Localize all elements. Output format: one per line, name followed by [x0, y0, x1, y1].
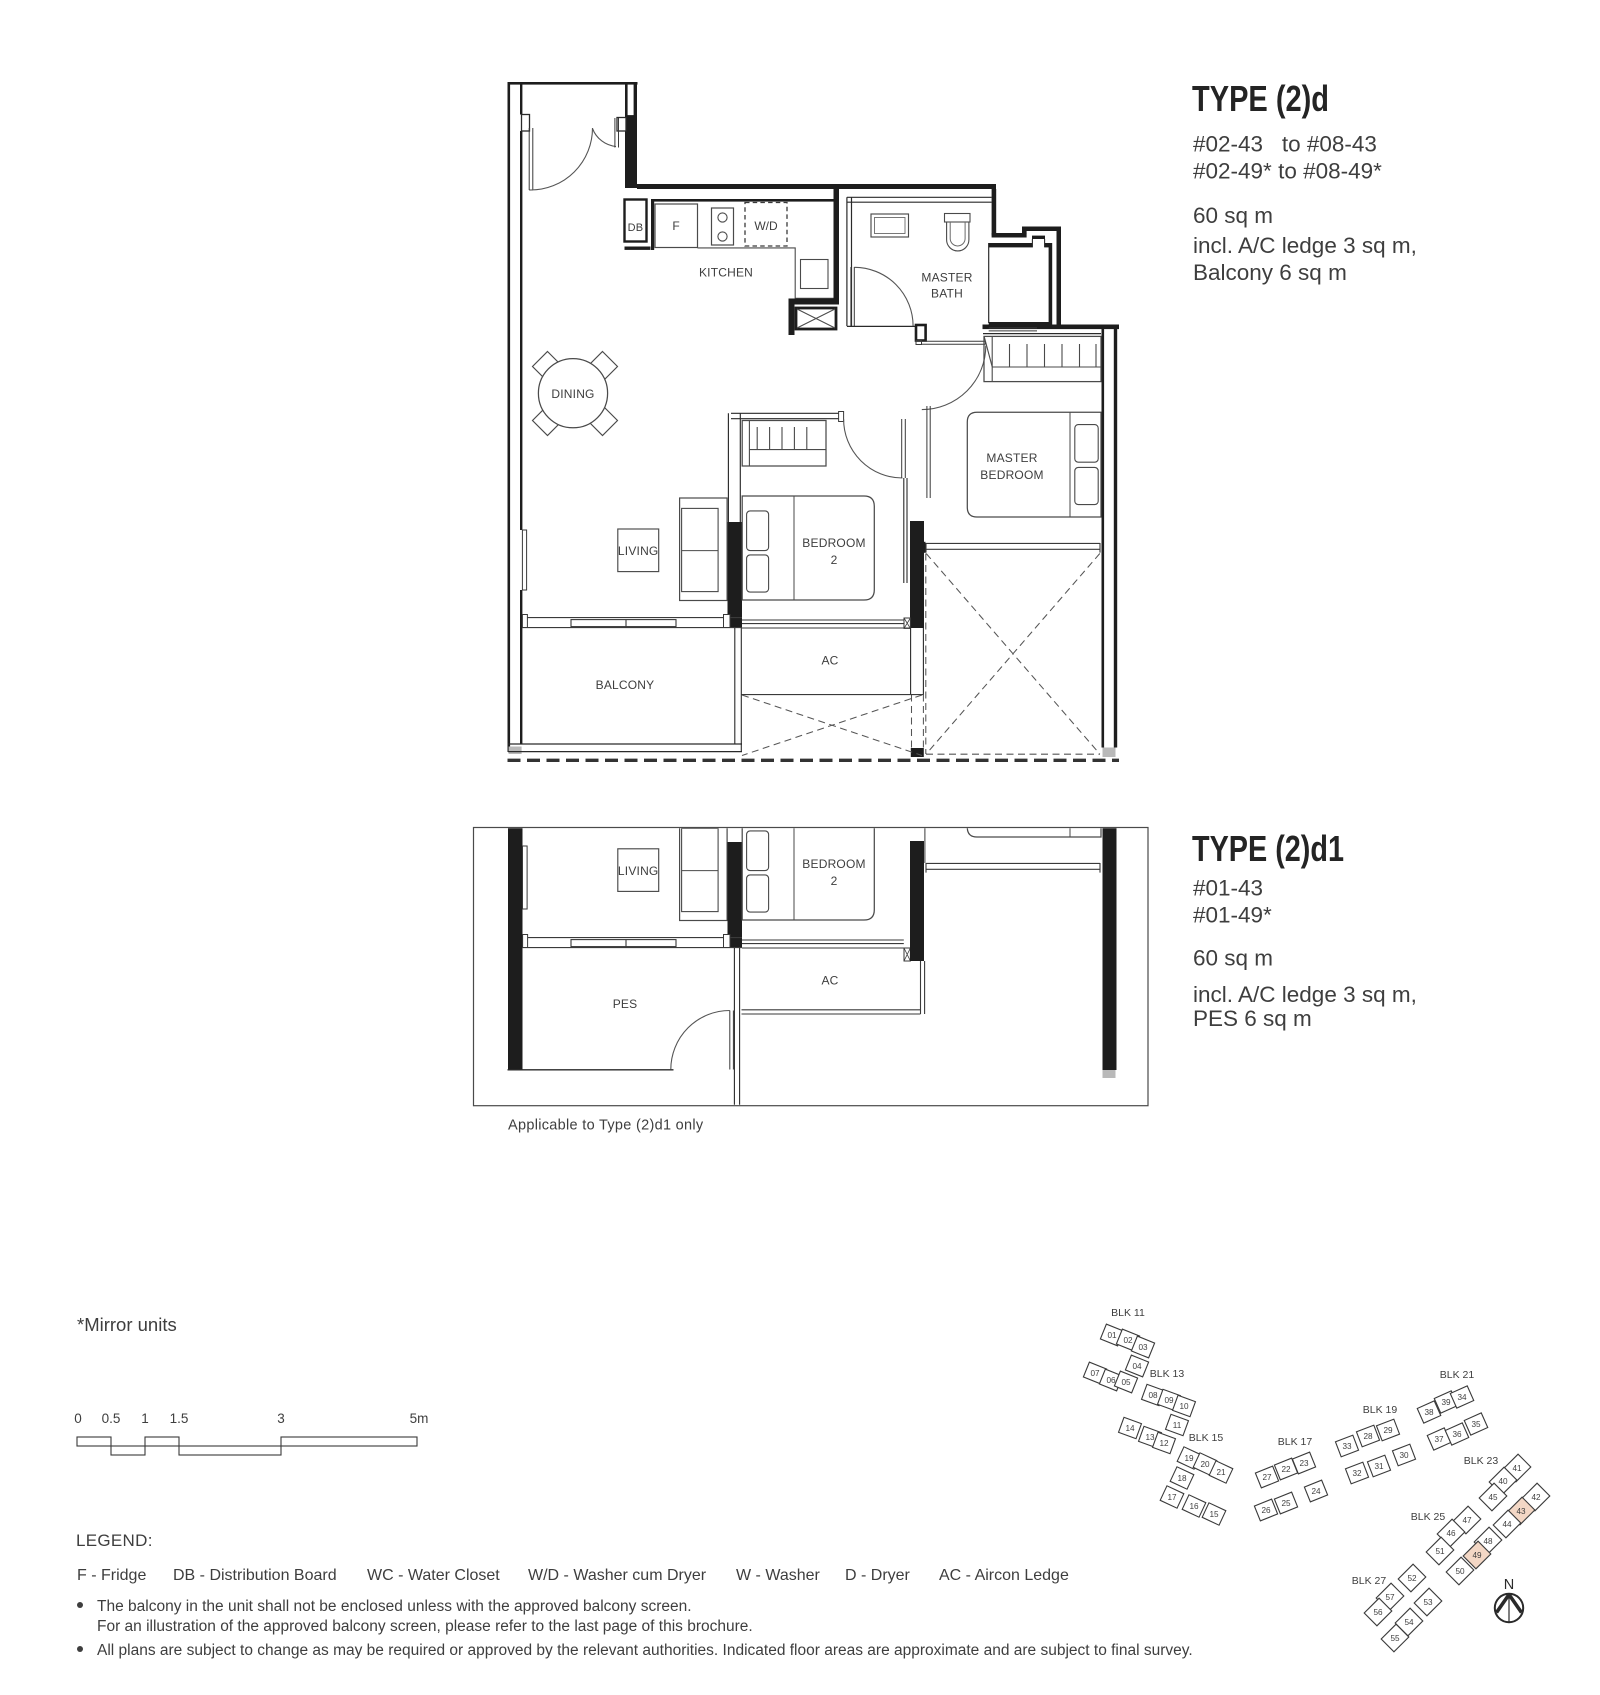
svg-text:30: 30 [1399, 1451, 1409, 1460]
svg-text:03: 03 [1138, 1343, 1148, 1352]
svg-text:0.5: 0.5 [102, 1411, 121, 1426]
svg-text:W/D - Washer cum Dryer: W/D - Washer cum Dryer [528, 1567, 707, 1584]
svg-text:DB - Distribution Board: DB - Distribution Board [173, 1567, 337, 1584]
svg-text:BEDROOM: BEDROOM [802, 536, 865, 550]
svg-text:11: 11 [1173, 1421, 1182, 1430]
svg-text:39: 39 [1441, 1398, 1451, 1407]
svg-text:incl. A/C ledge 3 sq m,: incl. A/C ledge 3 sq m, [1193, 982, 1417, 1007]
svg-text:TYPE (2)d: TYPE (2)d [1192, 78, 1329, 119]
svg-text:TYPE (2)d1: TYPE (2)d1 [1192, 828, 1344, 869]
svg-text:LIVING: LIVING [618, 864, 659, 878]
svg-text:The balcony in the unit shall: The balcony in the unit shall not be enc… [97, 1598, 692, 1615]
svg-text:DINING: DINING [551, 387, 594, 401]
svg-text:BLK 11: BLK 11 [1111, 1307, 1145, 1319]
svg-text:PES 6 sq m: PES 6 sq m [1193, 1006, 1312, 1031]
svg-text:31: 31 [1374, 1462, 1384, 1471]
svg-text:28: 28 [1363, 1432, 1373, 1441]
svg-text:23: 23 [1299, 1459, 1309, 1468]
svg-text:W/D: W/D [754, 219, 778, 233]
svg-text:1: 1 [141, 1411, 149, 1426]
svg-text:#02-49* to #08-49*: #02-49* to #08-49* [1193, 159, 1382, 184]
svg-text:*Mirror units: *Mirror units [77, 1314, 177, 1335]
svg-text:26: 26 [1261, 1506, 1271, 1515]
svg-text:AC - Aircon Ledge: AC - Aircon Ledge [939, 1567, 1069, 1584]
svg-text:09: 09 [1164, 1396, 1174, 1405]
svg-text:MASTER: MASTER [986, 451, 1037, 465]
svg-text:WC - Water Closet: WC - Water Closet [367, 1567, 500, 1584]
svg-text:D - Dryer: D - Dryer [845, 1567, 911, 1584]
svg-text:38: 38 [1424, 1408, 1434, 1417]
svg-text:02: 02 [1123, 1336, 1133, 1345]
svg-text:incl. A/C ledge 3 sq m,: incl. A/C ledge 3 sq m, [1193, 233, 1417, 258]
svg-text:For an illustration of the app: For an illustration of the approved balc… [97, 1618, 753, 1635]
svg-text:35: 35 [1471, 1420, 1481, 1429]
svg-text:45: 45 [1488, 1493, 1498, 1502]
svg-text:49: 49 [1472, 1551, 1482, 1560]
svg-text:33: 33 [1342, 1442, 1352, 1451]
svg-text:10: 10 [1179, 1402, 1189, 1411]
svg-text:14: 14 [1125, 1424, 1135, 1433]
svg-text:15: 15 [1209, 1510, 1219, 1519]
svg-text:05: 05 [1121, 1378, 1131, 1387]
svg-text:#02-43 to #08-43: #02-43 to #08-43 [1193, 132, 1377, 157]
svg-text:32: 32 [1352, 1469, 1362, 1478]
svg-text:PES: PES [613, 997, 638, 1011]
svg-text:BLK 13: BLK 13 [1150, 1368, 1185, 1380]
svg-text:#01-43: #01-43 [1193, 876, 1263, 901]
svg-text:17: 17 [1167, 1493, 1177, 1502]
svg-text:AC: AC [821, 974, 838, 988]
svg-text:W - Washer: W - Washer [736, 1567, 821, 1584]
svg-text:56: 56 [1373, 1608, 1383, 1617]
svg-text:1.5: 1.5 [170, 1411, 189, 1426]
svg-text:60 sq m: 60 sq m [1193, 946, 1273, 971]
svg-text:BLK 17: BLK 17 [1278, 1436, 1313, 1448]
svg-text:DB: DB [628, 222, 644, 234]
svg-text:3: 3 [277, 1411, 285, 1426]
svg-text:#01-49*: #01-49* [1193, 903, 1272, 928]
svg-text:07: 07 [1090, 1369, 1100, 1378]
svg-text:BLK 21: BLK 21 [1440, 1369, 1475, 1381]
svg-text:F - Fridge: F - Fridge [77, 1567, 146, 1584]
svg-text:44: 44 [1502, 1520, 1512, 1529]
svg-text:16: 16 [1189, 1502, 1199, 1511]
svg-text:08: 08 [1148, 1391, 1158, 1400]
svg-text:42: 42 [1531, 1493, 1541, 1502]
svg-text:25: 25 [1281, 1499, 1291, 1508]
svg-text:BALCONY: BALCONY [596, 678, 655, 692]
svg-text:MASTER: MASTER [921, 271, 972, 285]
svg-text:29: 29 [1383, 1426, 1393, 1435]
svg-text:13: 13 [1145, 1433, 1155, 1442]
svg-text:AC: AC [821, 654, 838, 668]
svg-text:40: 40 [1498, 1477, 1508, 1486]
svg-text:KITCHEN: KITCHEN [699, 266, 753, 280]
svg-text:LIVING: LIVING [618, 544, 659, 558]
svg-text:LEGEND:: LEGEND: [76, 1531, 153, 1550]
svg-text:37: 37 [1434, 1435, 1444, 1444]
svg-text:12: 12 [1159, 1439, 1169, 1448]
svg-text:20: 20 [1200, 1460, 1210, 1469]
svg-text:06: 06 [1106, 1376, 1116, 1385]
svg-text:57: 57 [1385, 1593, 1395, 1602]
svg-text:55: 55 [1390, 1634, 1400, 1643]
svg-text:36: 36 [1452, 1430, 1462, 1439]
svg-text:N: N [1504, 1577, 1514, 1593]
svg-text:19: 19 [1184, 1454, 1194, 1463]
svg-text:21: 21 [1216, 1468, 1226, 1477]
svg-text:18: 18 [1177, 1474, 1187, 1483]
svg-text:BLK 19: BLK 19 [1363, 1404, 1398, 1416]
svg-text:53: 53 [1423, 1598, 1433, 1607]
svg-text:BLK 27: BLK 27 [1352, 1575, 1387, 1587]
svg-text:2: 2 [831, 553, 838, 567]
svg-text:47: 47 [1462, 1516, 1472, 1525]
svg-text:04: 04 [1132, 1362, 1142, 1371]
svg-text:BLK 23: BLK 23 [1464, 1455, 1499, 1467]
svg-text:60 sq m: 60 sq m [1193, 203, 1273, 228]
svg-text:27: 27 [1262, 1473, 1272, 1482]
svg-text:F: F [672, 219, 679, 233]
svg-text:Balcony 6 sq m: Balcony 6 sq m [1193, 260, 1347, 285]
svg-text:50: 50 [1455, 1567, 1465, 1576]
svg-text:2: 2 [831, 874, 838, 888]
svg-text:All plans are subject to chang: All plans are subject to change as may b… [97, 1642, 1193, 1659]
svg-text:41: 41 [1512, 1464, 1522, 1473]
svg-text:22: 22 [1281, 1465, 1291, 1474]
svg-text:34: 34 [1457, 1393, 1467, 1402]
svg-text:54: 54 [1404, 1618, 1414, 1627]
svg-text:BEDROOM: BEDROOM [980, 468, 1043, 482]
svg-text:BLK 15: BLK 15 [1189, 1432, 1224, 1444]
svg-text:BLK 25: BLK 25 [1411, 1511, 1446, 1523]
svg-text:52: 52 [1407, 1574, 1417, 1583]
svg-text:5m: 5m [410, 1411, 429, 1426]
svg-text:51: 51 [1435, 1547, 1445, 1556]
svg-text:43: 43 [1516, 1507, 1526, 1516]
svg-text:0: 0 [74, 1411, 82, 1426]
svg-text:01: 01 [1107, 1331, 1117, 1340]
svg-text:46: 46 [1446, 1529, 1456, 1538]
svg-text:48: 48 [1483, 1537, 1493, 1546]
svg-text:Applicable to Type (2)d1 only: Applicable to Type (2)d1 only [508, 1118, 704, 1134]
svg-text:BEDROOM: BEDROOM [802, 857, 865, 871]
svg-text:BATH: BATH [931, 287, 963, 301]
svg-text:24: 24 [1311, 1487, 1321, 1496]
